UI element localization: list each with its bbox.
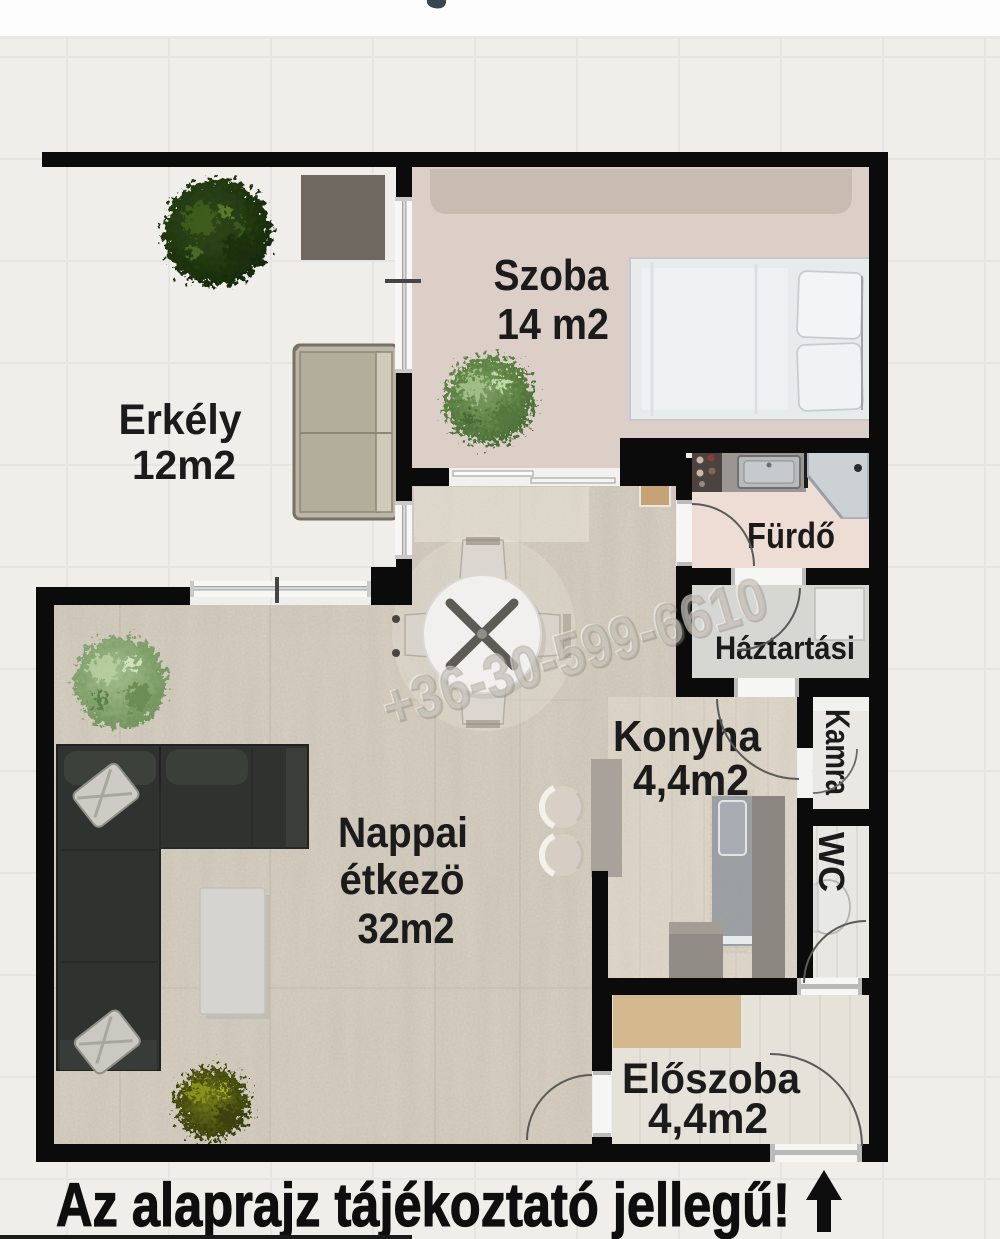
svg-text:Az alaprajz tájékoztató jelleg: Az alaprajz tájékoztató jellegű!: [56, 1171, 790, 1239]
svg-text:étkezö: étkezö: [340, 856, 465, 904]
svg-text:Nappai: Nappai: [338, 809, 468, 857]
svg-text:Kamra: Kamra: [818, 709, 856, 796]
svg-text:WC: WC: [811, 832, 852, 892]
svg-text:12m2: 12m2: [132, 442, 236, 488]
svg-text:14 m2: 14 m2: [497, 300, 609, 349]
svg-text:4,4m2: 4,4m2: [633, 756, 749, 805]
svg-text:32m2: 32m2: [358, 905, 455, 953]
svg-text:4,4m2: 4,4m2: [648, 1095, 768, 1143]
svg-text:Fürdő: Fürdő: [747, 515, 835, 556]
svg-text:Erkély: Erkély: [119, 396, 242, 444]
svg-text:Szoba: Szoba: [494, 251, 609, 300]
